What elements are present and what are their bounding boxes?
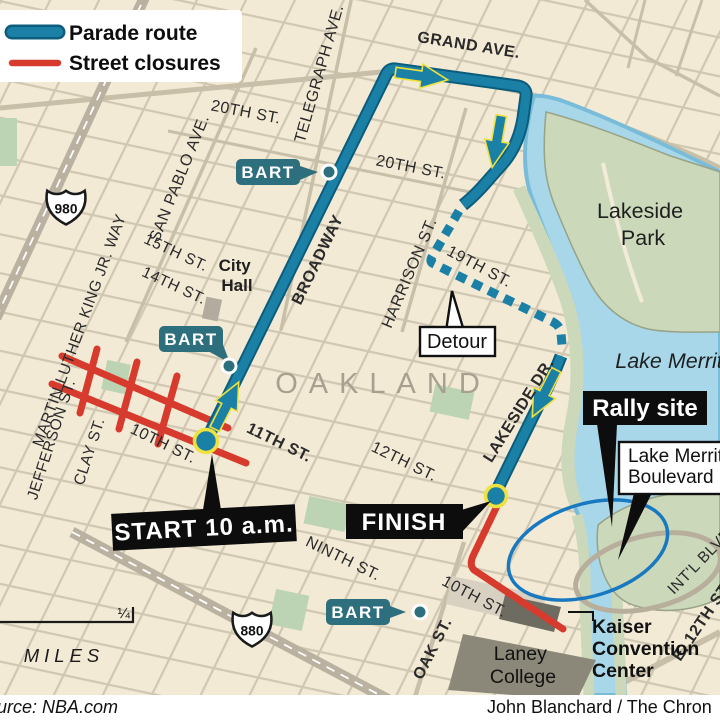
finish-label: FINISH — [362, 509, 447, 536]
legend-parade-label: Parade route — [69, 22, 197, 45]
scale-quarter-label: ¼ — [117, 605, 130, 622]
bart-label-2: BART — [164, 330, 217, 349]
bart-station-dot-20th — [322, 165, 336, 179]
footer-bar: urce: NBA.com John Blanchard / The Chron — [0, 695, 720, 720]
place-label-city-hall: City Hall — [219, 256, 256, 295]
bart-label-1: BART — [241, 163, 294, 182]
bart-station-dot-12th — [222, 359, 236, 373]
parade-map: GRAND AVE. TELEGRAPH AVE. 20TH ST. SAN P… — [0, 0, 720, 720]
rally-site-label: Rally site — [592, 395, 697, 422]
footer-source: urce: NBA.com — [0, 697, 118, 717]
footer-credit: John Blanchard / The Chron — [487, 697, 712, 717]
bart-label-3: BART — [331, 603, 384, 622]
place-label-lake-merritt: Lake Merritt — [615, 349, 720, 373]
i980-shield-label: 980 — [55, 201, 78, 216]
parade-map-page: GRAND AVE. TELEGRAPH AVE. 20TH ST. SAN P… — [0, 0, 720, 720]
start-marker — [195, 430, 218, 453]
legend-closure-label: Street closures — [69, 52, 221, 75]
legend: Parade route Street closures — [0, 10, 242, 82]
i880-shield-label: 880 — [241, 623, 264, 638]
lake-merritt-blvd-label: Lake Merritt Boulevard — [628, 446, 720, 488]
detour-label: Detour — [427, 331, 487, 353]
place-label-laney-college: Laney College — [490, 643, 556, 688]
bart-station-dot-lake-merritt — [413, 605, 427, 619]
scale-miles-label: MILES — [24, 645, 105, 666]
place-label-oakland: OAKLAND — [275, 368, 491, 400]
